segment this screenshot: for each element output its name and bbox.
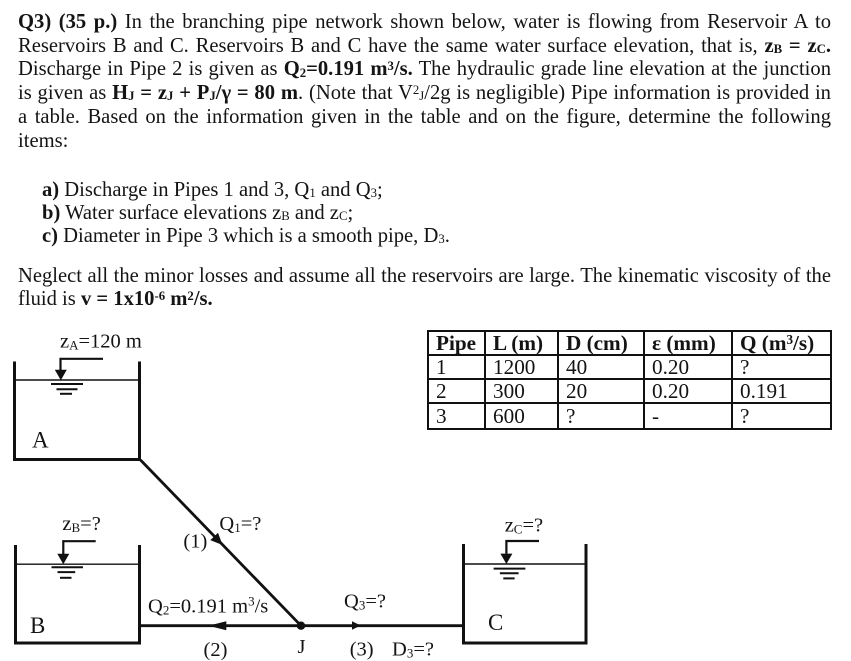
svg-text:D3=?: D3=? [392,639,434,661]
svg-text:Q3=?: Q3=? [344,591,386,613]
svg-text:Q1=?: Q1=? [219,513,261,535]
svg-text:zC=?: zC=? [505,515,543,537]
svg-text:J: J [298,636,306,658]
svg-text:C: C [488,610,503,635]
svg-text:(3): (3) [350,639,374,661]
svg-text:(1): (1) [183,531,207,553]
svg-text:(2): (2) [204,639,228,661]
svg-text:Q2=0.191 m3/s: Q2=0.191 m3/s [148,594,268,618]
svg-text:zB=?: zB=? [62,513,100,535]
svg-text:B: B [30,613,45,638]
svg-text:A: A [32,428,49,453]
svg-text:zA=120 m: zA=120 m [60,331,142,353]
